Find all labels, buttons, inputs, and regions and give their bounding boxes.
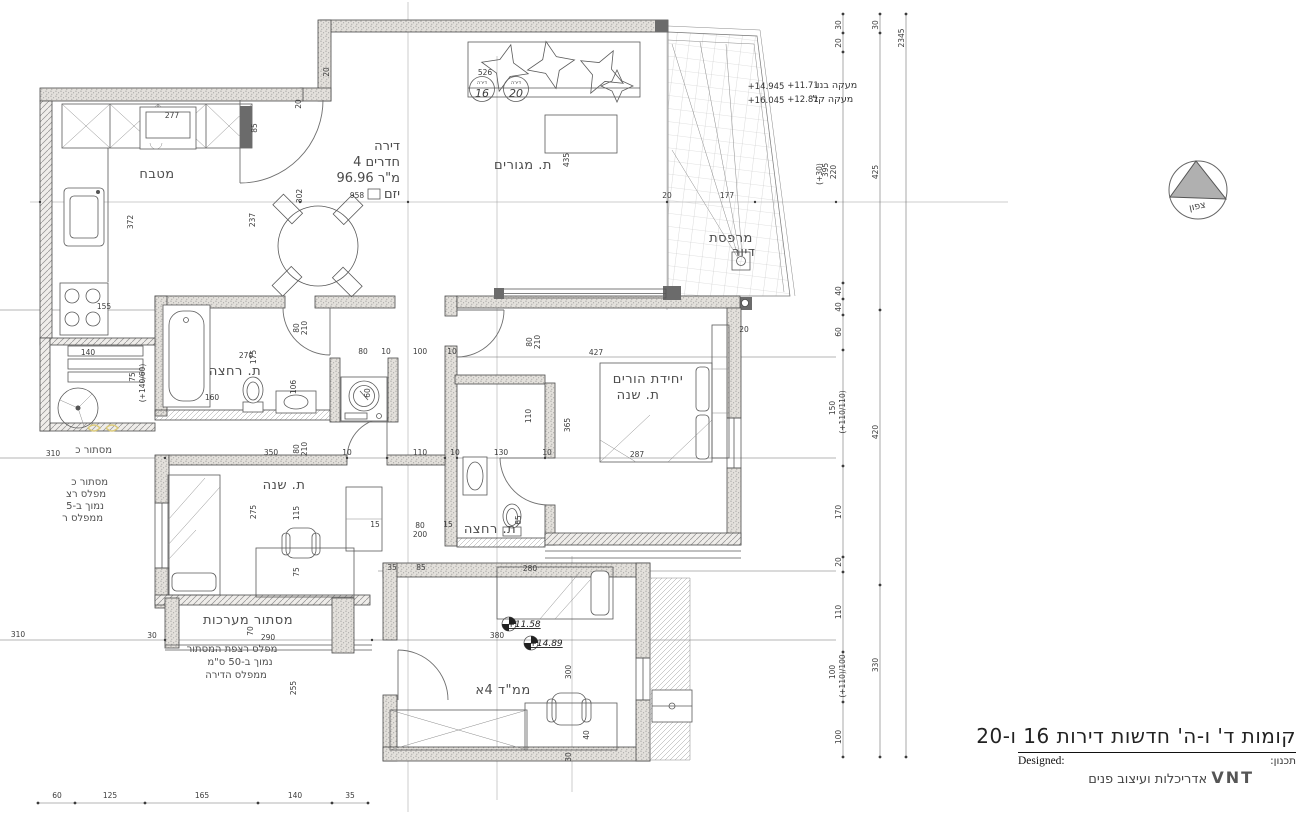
annotation-dim: 80: [415, 521, 425, 530]
designed-label: Designed:: [1018, 755, 1065, 767]
annotation-dim: 277: [165, 111, 180, 120]
entry-door-arc: [240, 100, 323, 183]
planning-label: תכנון:: [1270, 755, 1296, 767]
firm-desc: אדריכלות ועיצוב פנים: [1088, 772, 1207, 787]
annotation-dim: 35: [387, 563, 397, 572]
annotation-dim: 526: [478, 68, 493, 77]
yizam-box: [368, 189, 380, 199]
annotation-dim: (+30): [815, 163, 824, 185]
annotation-dim: 280: [523, 564, 538, 573]
annotation-dim: 30: [147, 631, 157, 640]
annotation-note: ממפלס הדירה: [205, 670, 267, 681]
annotation-info: 96.96 מ"ר: [336, 171, 400, 186]
annotation-dim: 160: [205, 393, 220, 402]
annotation-dim: 237: [248, 213, 257, 228]
annotation-room: ת. מגורים: [494, 158, 552, 173]
annotation-dim: 210: [300, 442, 309, 457]
annotation-dim: 110: [524, 409, 533, 424]
annotation-dim: 35: [345, 791, 355, 800]
annotation-info: דירה: [374, 139, 400, 154]
annotation-dim: 140: [288, 791, 303, 800]
annotation-dim: 15: [443, 520, 453, 529]
annotation-dim: 130: [494, 448, 509, 457]
north-arrow-triangle: [1170, 161, 1226, 199]
annotation-dim: 100: [413, 347, 428, 356]
floor-plan-canvas: דירה 16 דירה 20: [0, 0, 1300, 816]
annotation-levelmark: +14.89: [529, 639, 563, 649]
title-block-divider: [1018, 752, 1296, 753]
north-arrow: צפון: [1169, 161, 1227, 219]
floor-plan-sheet: דירה 16 דירה 20: [0, 0, 1300, 816]
annotation-dim: 155: [97, 302, 112, 311]
annotation-dim: 310: [11, 630, 26, 639]
laundry-unit: [58, 346, 143, 431]
annotation-dim: 165: [195, 791, 210, 800]
annotation-dim: (+110/110): [838, 390, 847, 433]
annotation-room: ת. רחצה: [464, 522, 516, 537]
annotation-dim: 100: [828, 665, 837, 680]
saferoom-wardrobe: [390, 710, 527, 750]
saferoom-desk: [525, 703, 617, 750]
annotation-dim: 10: [381, 347, 391, 356]
annotation-dim: 427: [589, 348, 604, 357]
annotation-note: מסתור כ: [75, 445, 112, 456]
tv-cabinet: [545, 115, 617, 153]
annotation-dim: 372: [126, 215, 135, 230]
annotation-dim: 80: [358, 347, 368, 356]
annotation-note: נמוך ב-5: [66, 501, 104, 512]
apartment-circle-16-label: דירה: [477, 80, 487, 86]
annotation-dim: 177: [720, 191, 735, 200]
annotation-note: מפלס רצ: [66, 489, 106, 500]
annotation-dim: 115: [292, 506, 301, 521]
annotation-dim: 310: [46, 449, 61, 458]
apartment-circle-16-num: 16: [475, 87, 489, 100]
annotation-dim: 70: [246, 626, 255, 636]
annotation-room: ת. רחצה: [209, 364, 261, 379]
annotation-dim: 75: [292, 567, 301, 577]
annotation-dim: 210: [300, 321, 309, 336]
saferoom-door-arc: [398, 650, 448, 700]
annotation-level: +16.045: [748, 96, 785, 106]
annotation-dim: 20: [662, 191, 672, 200]
north-label: צפון: [1188, 199, 1207, 213]
annotation-dim: 85: [416, 563, 426, 572]
annotation-dim: 110: [413, 448, 428, 457]
balcony: [668, 26, 795, 310]
ensuite-door-arc: [500, 458, 548, 505]
annotation-levelheb: מעקה בנוי: [815, 80, 857, 91]
annotation-levelmark: +11.58: [507, 620, 541, 630]
annotation-dim: 350: [264, 448, 279, 457]
annotation-room: מסתור מערכות: [203, 613, 293, 628]
annotation-dim: 100: [834, 730, 843, 745]
annotation-dim: 40: [582, 730, 591, 740]
annotation-level: +14.945: [748, 82, 785, 92]
annotation-dim: 20: [739, 325, 749, 334]
dining-table: [272, 194, 363, 297]
annotation-dim: 330: [871, 658, 880, 673]
annotation-dim: 10: [342, 448, 352, 457]
annotation-dim: 200: [413, 530, 428, 539]
annotation-info: יזם: [384, 187, 400, 202]
annotation-dim: 10: [450, 448, 460, 457]
title-block: קומות ד' ו-ה' חדשות דירות 16 ו-20 Design…: [1018, 724, 1296, 787]
annotation-dim: 287: [630, 450, 645, 459]
washing-machine: [341, 377, 387, 421]
annotation-dim: 420: [871, 425, 880, 440]
parents-wardrobe: [712, 325, 729, 458]
toilet-1: [243, 377, 263, 412]
kitchen-cabinets: [62, 104, 252, 149]
apartment-circle-20-num: 20: [509, 87, 523, 100]
firm-line: VNT אדריכלות ועיצוב פנים: [1018, 768, 1296, 787]
annotation-dim: 140: [81, 348, 96, 357]
annotation-room: ת. שנה: [263, 478, 306, 493]
annotation-dim: 150: [828, 401, 837, 416]
annotation-note: מפלס רצפת המסתור: [187, 644, 278, 655]
annotation-dim: 2345: [897, 28, 906, 47]
annotation-room: מרפסת: [709, 231, 753, 246]
desk-2: [256, 548, 354, 597]
annotation-dim: 10: [447, 347, 457, 356]
annotation-dim: 958: [350, 191, 365, 200]
annotation-dim: 380: [490, 631, 505, 640]
annotation-dim: 20: [834, 557, 843, 567]
annotation-dim: 10: [542, 448, 552, 457]
annotation-dim: 30: [834, 20, 843, 30]
annotation-note: ממפלס ר: [62, 513, 103, 524]
annotation-dim: 20: [834, 38, 843, 48]
annotation-dim: 365: [563, 418, 572, 433]
annotation-dim: 65: [514, 515, 523, 525]
annotation-dim: 175: [249, 350, 258, 365]
annotation-note: נמוך ב-50 ס"מ: [207, 657, 272, 668]
annotation-dim: 435: [562, 153, 571, 168]
annotation-dim: 110: [834, 605, 843, 620]
annotation-dim: 220: [829, 165, 838, 180]
bedroom2-door-arc: [347, 418, 387, 458]
annotation-dim: 106: [289, 380, 298, 395]
annotation-info: 4 חדרים: [353, 155, 400, 170]
annotation-dim: 290: [261, 633, 276, 642]
sofa: [468, 37, 640, 105]
annotation-levelheb: מעקה קל: [813, 94, 854, 105]
annotation-dim: 210: [533, 335, 542, 350]
annotation-dim: 302: [295, 189, 304, 204]
annotation-dim: (+110)/100: [838, 654, 847, 698]
annotation-dim: 40: [834, 302, 843, 312]
sheet-title: קומות ד' ו-ה' חדשות דירות 16 ו-20: [1018, 724, 1296, 748]
annotation-dim: 60: [363, 388, 372, 398]
annotation-dim: 40: [834, 286, 843, 296]
apartment-circle-20-label: דירה: [511, 80, 521, 86]
annotation-dim: 425: [871, 165, 880, 180]
annotation-dim: 300: [564, 665, 573, 680]
annotation-dim: 85: [250, 123, 259, 133]
annotation-room: ת. שנה: [617, 388, 660, 403]
annotation-room: מטבח: [139, 167, 174, 182]
annotation-dim: 275: [249, 505, 258, 520]
annotation-dim: 255: [289, 681, 298, 696]
annotation-room: ממ"ד 4א: [475, 683, 530, 698]
chair-2: [286, 528, 316, 558]
annotation-dim: 15: [370, 520, 380, 529]
annotation-dim: 60: [834, 327, 843, 337]
annotation-dim: 30: [871, 20, 880, 30]
bed-2: [168, 475, 220, 595]
annotation-dim: 20: [322, 67, 331, 77]
annotation-dim: 170: [834, 505, 843, 520]
annotation-room: דיור: [733, 245, 756, 260]
annotation-dim: (+140/60): [138, 364, 147, 403]
annotation-dim: 125: [103, 791, 118, 800]
firm-name: VNT: [1211, 768, 1254, 787]
annotation-dim: 20: [294, 99, 303, 109]
annotation-room: יחידת הורים: [613, 372, 684, 387]
annotation-dim: 60: [52, 791, 62, 800]
saferoom-chair: [552, 693, 586, 725]
annotation-dim: 30: [564, 752, 573, 762]
annotation-note: מסתור כ: [71, 477, 108, 488]
annotation-dim: 75: [128, 372, 137, 382]
